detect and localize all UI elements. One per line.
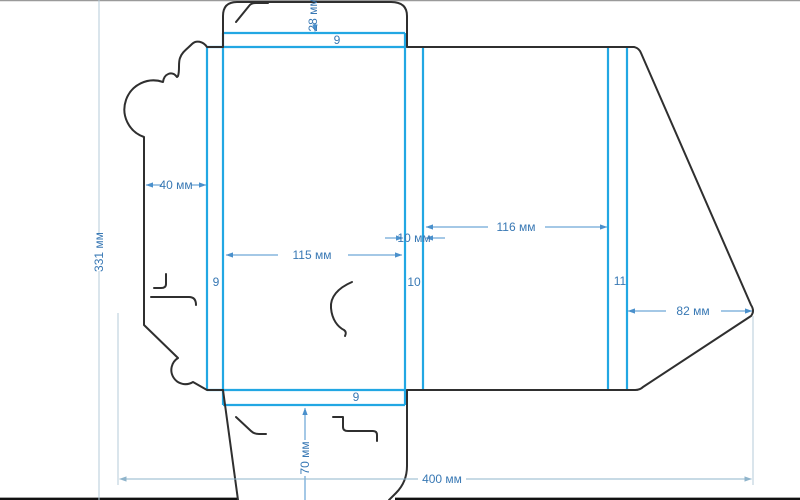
dim-right-flap-label: 82 мм bbox=[676, 304, 709, 318]
dimension-lines bbox=[146, 24, 752, 500]
cut-lines bbox=[124, 2, 753, 500]
dim-top-flap-label: 28 мм bbox=[306, 0, 320, 32]
dim-glue-flap-label: 40 мм bbox=[159, 178, 192, 192]
dimension-labels: 28 мм 40 мм 115 мм 10 мм 116 мм 82 мм 70… bbox=[92, 0, 710, 486]
dim-total-height-label: 331 мм bbox=[92, 232, 106, 272]
strip-labels: 9 9 10 11 9 bbox=[213, 33, 627, 404]
left-flap-lock-cut bbox=[151, 274, 196, 305]
thumb-notch-cut bbox=[331, 282, 352, 336]
dim-spine-label: 10 мм bbox=[397, 231, 430, 245]
dim-total-width-label: 400 мм bbox=[422, 472, 462, 486]
dim-back-panel-label: 116 мм bbox=[497, 220, 536, 234]
border-lines bbox=[0, 1, 800, 499]
bottom-lock-cut bbox=[333, 417, 377, 441]
bottom-flap-left-edge-cut bbox=[223, 390, 238, 500]
bottom-flap-crease-mark bbox=[236, 417, 266, 434]
strip-label-left: 9 bbox=[213, 275, 220, 289]
main-body-right-cut bbox=[407, 47, 753, 390]
top-flap-crease-mark bbox=[236, 3, 268, 22]
fold-lines bbox=[207, 33, 627, 405]
dieline-drawing: 28 мм 40 мм 115 мм 10 мм 116 мм 82 мм 70… bbox=[0, 0, 800, 500]
strip-label-right: 11 bbox=[614, 274, 627, 288]
dim-front-panel-label: 115 мм bbox=[293, 248, 332, 262]
left-flap-cut bbox=[124, 42, 223, 390]
dim-bottom-flap-label: 70 мм bbox=[298, 441, 312, 474]
dieline-canvas: 28 мм 40 мм 115 мм 10 мм 116 мм 82 мм 70… bbox=[0, 0, 800, 500]
extension-lines bbox=[99, 0, 753, 500]
strip-label-top: 9 bbox=[334, 33, 341, 47]
strip-label-bottom: 9 bbox=[353, 390, 360, 404]
bottom-flap-right-edge-cut bbox=[389, 390, 407, 500]
strip-label-center: 10 bbox=[407, 275, 421, 289]
